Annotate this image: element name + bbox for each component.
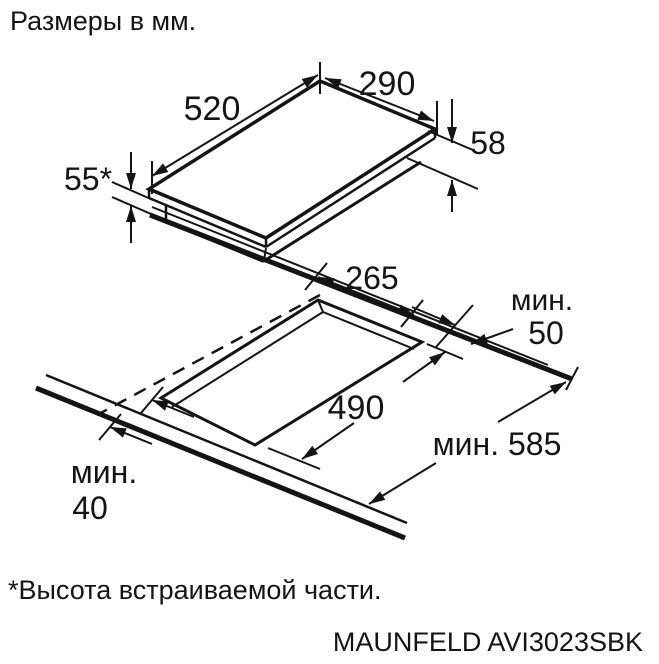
- model-label: MAUNFELD AVI3023SBK: [333, 627, 643, 658]
- dim-58-bottom-head: [447, 180, 457, 196]
- dim-label-490: 490: [328, 389, 385, 427]
- footnote: *Высота встраиваемой части.: [8, 575, 382, 606]
- dim-label-265: 265: [345, 260, 398, 296]
- dim-min50-upper-head: [438, 314, 455, 325]
- dim-label-min585: мин. 585: [433, 426, 562, 462]
- diagram-canvas: 5202905855*265мин.50490мин. 585мин.40: [0, 0, 659, 664]
- dim-min585-lower-head: [369, 491, 385, 504]
- technical-drawing: 5202905855*265мин.50490мин. 585мин.40: [0, 0, 659, 664]
- dim-label-min50-num: 50: [528, 315, 564, 351]
- dim-label-290: 290: [359, 65, 416, 103]
- dim-520-line-rev-head: [152, 163, 168, 176]
- dim-290-line-head: [417, 110, 434, 121]
- ref-55-upper: [112, 182, 153, 200]
- dim-490-lower-head: [302, 446, 318, 459]
- dim-label-520: 520: [184, 90, 241, 128]
- dim-55-top-head: [126, 173, 136, 189]
- dim-label-55: 55*: [64, 161, 112, 197]
- ref-58-lower: [407, 158, 478, 189]
- page-title: Размеры в мм.: [10, 6, 196, 37]
- dim-label-min40-word: мин.: [71, 454, 137, 490]
- dim-min40-outer-head: [110, 427, 127, 438]
- dim-label-min40-num: 40: [72, 490, 108, 526]
- dim-55-bottom-head: [126, 206, 136, 222]
- dim-490-upper-head: [429, 352, 445, 365]
- dim-min40-inner-head: [152, 400, 169, 411]
- dimension-drawing-page: 5202905855*265мин.50490мин. 585мин.40 Ра…: [0, 0, 659, 664]
- dim-label-min50-word: мин.: [511, 284, 573, 317]
- dim-min585-upper-head: [550, 382, 566, 394]
- dim-label-58: 58: [470, 125, 506, 161]
